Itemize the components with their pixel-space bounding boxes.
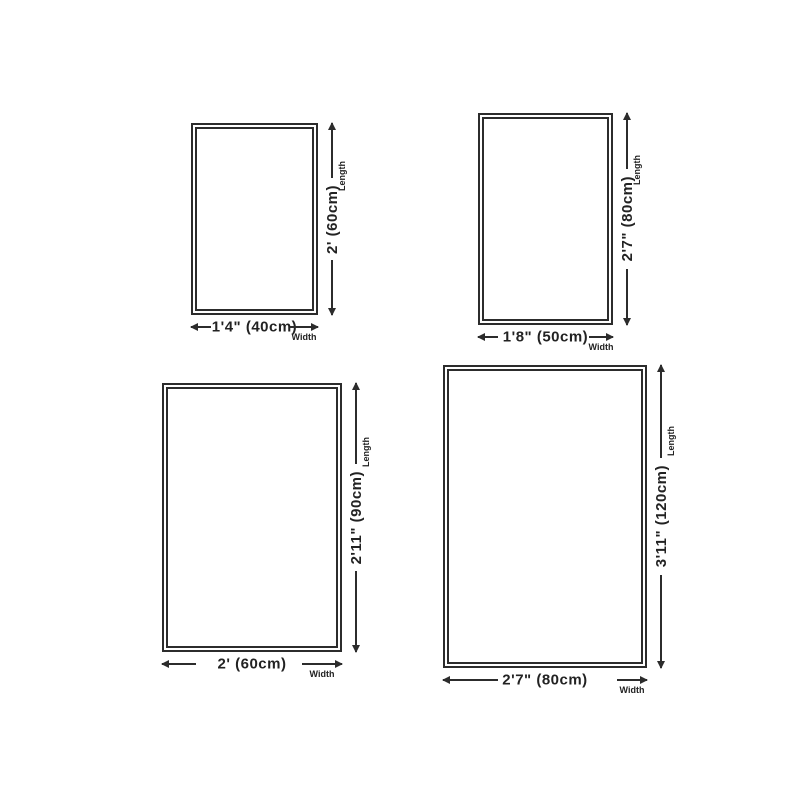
length-axis-caption: Length: [361, 437, 371, 467]
length-dimension-label: 2'11" (90cm): [348, 471, 365, 564]
length-dimension: 3'11" (120cm) Length: [653, 365, 669, 668]
length-arrow-up-icon: [355, 383, 357, 464]
length-axis-caption: Length: [337, 161, 347, 191]
width-dimension: 1'8" (50cm) Width: [478, 327, 613, 347]
rug-inner-outline: [447, 369, 643, 664]
rug-outline: [191, 123, 318, 315]
size-chart-canvas: 2' (60cm) Length 1'4" (40cm) Width 2'7" …: [0, 0, 800, 800]
length-arrow-up-icon: [626, 113, 628, 169]
length-axis-caption: Length: [666, 426, 676, 456]
rug-outline: [162, 383, 342, 652]
length-dimension: 2'7" (80cm) Length: [619, 113, 635, 325]
length-arrow-up-icon: [660, 365, 662, 458]
length-arrow-down-icon: [355, 571, 357, 652]
width-axis-caption: Width: [589, 342, 614, 352]
length-arrow-up-icon: [331, 123, 333, 178]
length-dimension: 2'11" (90cm) Length: [348, 383, 364, 652]
width-axis-caption: Width: [310, 669, 335, 679]
rug-outline: [478, 113, 613, 325]
rug-inner-outline: [195, 127, 314, 311]
rug-inner-outline: [166, 387, 338, 648]
width-axis-caption: Width: [292, 332, 317, 342]
rug-outline: [443, 365, 647, 668]
width-axis-caption: Width: [620, 685, 645, 695]
length-axis-caption: Length: [632, 155, 642, 185]
width-arrow-right-icon: [589, 336, 613, 338]
length-arrow-down-icon: [660, 575, 662, 668]
length-dimension-label: 2' (60cm): [324, 185, 341, 254]
width-dimension: 1'4" (40cm) Width: [191, 317, 318, 337]
rug-inner-outline: [482, 117, 609, 321]
length-arrow-down-icon: [331, 260, 333, 315]
width-arrow-right-icon: [290, 326, 318, 328]
length-dimension: 2' (60cm) Length: [324, 123, 340, 315]
width-arrow-right-icon: [617, 679, 647, 681]
width-arrow-right-icon: [302, 663, 342, 665]
length-arrow-down-icon: [626, 269, 628, 325]
length-dimension-label: 3'11" (120cm): [653, 465, 670, 567]
width-dimension: 2' (60cm) Width: [162, 654, 342, 674]
length-dimension-label: 2'7" (80cm): [619, 176, 636, 261]
width-dimension: 2'7" (80cm) Width: [443, 670, 647, 690]
